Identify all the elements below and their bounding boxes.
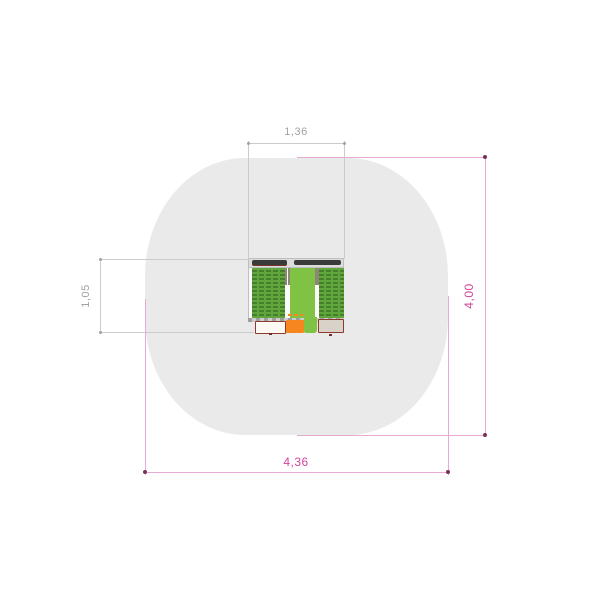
- dimension-tick: [99, 331, 102, 334]
- orange-marks: [288, 314, 303, 316]
- center-panel: [290, 268, 315, 318]
- equipment-body: [248, 268, 344, 318]
- extension-line: [248, 141, 249, 259]
- seat-left-foot: [269, 333, 272, 335]
- frame-post: [285, 268, 287, 285]
- dimension-tick: [247, 142, 250, 145]
- dimension-label-equipment-depth: 1,05: [80, 276, 92, 316]
- dimension-tick: [446, 470, 450, 474]
- dimension-label-safety-area-width: 4,36: [266, 455, 326, 469]
- seat-right: [318, 319, 344, 333]
- extension-line: [145, 299, 146, 475]
- extension-line: [297, 157, 486, 158]
- climbing-panel-right: [319, 268, 344, 318]
- dimension-tick: [99, 258, 102, 261]
- dimension-label-equipment-width: 1,36: [271, 126, 321, 138]
- climbing-panel-left: [252, 268, 285, 318]
- dimension-tick: [343, 142, 346, 145]
- dimension-line: [145, 472, 449, 473]
- extension-line: [100, 332, 254, 333]
- orange-element: [286, 320, 304, 333]
- dimension-tick: [483, 433, 487, 437]
- top-bar-left: [252, 260, 287, 266]
- top-bar-right: [294, 260, 341, 265]
- equipment-top-view: [248, 258, 344, 336]
- extension-line: [297, 435, 486, 436]
- green-element: [304, 317, 317, 333]
- dimension-label-safety-area-height: 4,00: [462, 274, 476, 318]
- dimension-tick: [483, 155, 487, 159]
- dimension-line: [100, 259, 101, 333]
- extension-line: [448, 296, 449, 475]
- dimension-tick: [143, 470, 147, 474]
- dimension-line: [485, 157, 486, 436]
- extension-line: [344, 141, 345, 259]
- extension-line: [100, 259, 249, 260]
- dimension-line: [248, 143, 345, 144]
- plan-canvas: 1,36 1,05 4,00 4,36: [0, 0, 600, 600]
- seat-right-foot: [329, 334, 332, 336]
